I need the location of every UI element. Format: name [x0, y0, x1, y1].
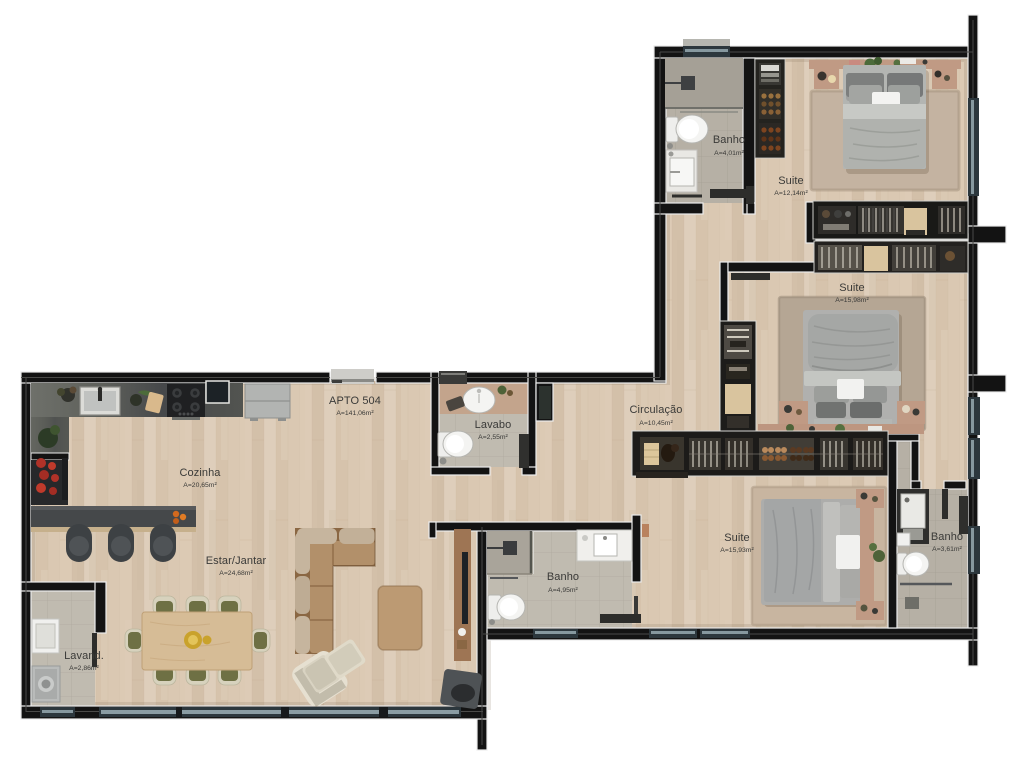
svg-text:A=20,65m²: A=20,65m²	[183, 482, 217, 489]
svg-text:Suite: Suite	[724, 532, 750, 544]
svg-text:A=4,95m²: A=4,95m²	[548, 587, 578, 594]
svg-text:Suite: Suite	[778, 175, 804, 187]
svg-text:Lavand.: Lavand.	[64, 650, 104, 662]
svg-text:Banho: Banho	[931, 531, 963, 543]
svg-text:Estar/Jantar: Estar/Jantar	[206, 555, 267, 567]
svg-text:A=15,93m²: A=15,93m²	[720, 547, 754, 554]
svg-text:APTO 504: APTO 504	[329, 395, 381, 407]
svg-text:A=24,68m²: A=24,68m²	[219, 570, 253, 577]
svg-text:A=15,98m²: A=15,98m²	[835, 297, 869, 304]
svg-text:A=12,14m²: A=12,14m²	[774, 190, 808, 197]
svg-text:A=141,06m²: A=141,06m²	[336, 410, 374, 417]
svg-text:Banho: Banho	[713, 134, 745, 146]
svg-text:A=2,86m²: A=2,86m²	[69, 665, 99, 672]
svg-text:A=3,61m²: A=3,61m²	[932, 546, 962, 553]
svg-text:Suite: Suite	[839, 282, 865, 294]
svg-text:Lavabo: Lavabo	[475, 419, 512, 431]
svg-text:A=2,55m²: A=2,55m²	[478, 434, 508, 441]
svg-text:Circulação: Circulação	[630, 404, 683, 416]
svg-text:Banho: Banho	[547, 571, 579, 583]
svg-text:Cozinha: Cozinha	[179, 467, 221, 479]
svg-text:A=4,01m²: A=4,01m²	[714, 150, 744, 157]
svg-text:A=10,45m²: A=10,45m²	[639, 420, 673, 427]
